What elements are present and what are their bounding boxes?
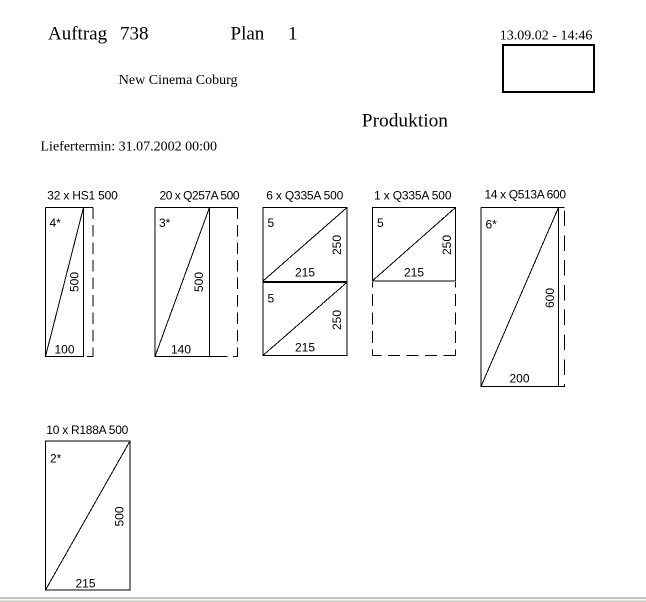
svg-text:Produktion: Produktion [362,111,448,132]
svg-text:215: 215 [75,577,95,591]
svg-text:1 x Q335A 500: 1 x Q335A 500 [374,189,452,203]
svg-text:32 x HS1 500: 32 x HS1 500 [47,189,118,203]
svg-text:215: 215 [295,266,315,280]
svg-text:600: 600 [543,288,557,308]
svg-text:Liefertermin: 31.07.2002 00:00: Liefertermin: 31.07.2002 00:00 [41,140,218,155]
svg-text:100: 100 [54,343,74,357]
svg-text:738: 738 [120,24,149,45]
svg-text:200: 200 [509,372,529,386]
svg-text:5: 5 [377,216,384,230]
svg-text:1: 1 [288,24,298,45]
svg-text:10 x R188A 500: 10 x R188A 500 [46,423,128,437]
svg-text:250: 250 [330,235,344,255]
svg-text:500: 500 [68,272,82,292]
svg-text:215: 215 [295,341,315,355]
svg-text:4*: 4* [50,216,62,230]
svg-text:140: 140 [171,343,191,357]
svg-text:250: 250 [330,310,344,330]
svg-text:5: 5 [268,292,275,306]
svg-text:5: 5 [268,216,275,230]
svg-text:6 x Q335A 500: 6 x Q335A 500 [266,189,343,203]
svg-text:500: 500 [192,272,206,292]
svg-text:14 x Q513A 600: 14 x Q513A 600 [485,188,567,202]
svg-text:500: 500 [113,506,127,526]
svg-text:20 x Q257A 500: 20 x Q257A 500 [160,189,240,203]
svg-text:2*: 2* [50,452,62,466]
svg-text:250: 250 [440,235,454,255]
svg-text:215: 215 [404,266,424,280]
svg-text:13.09.02 - 14:46: 13.09.02 - 14:46 [500,29,593,44]
svg-text:6*: 6* [486,218,498,232]
svg-text:Plan: Plan [231,24,265,45]
svg-text:New Cinema Coburg: New Cinema Coburg [119,73,238,88]
svg-text:3*: 3* [159,216,171,230]
svg-text:Auftrag: Auftrag [48,24,108,45]
